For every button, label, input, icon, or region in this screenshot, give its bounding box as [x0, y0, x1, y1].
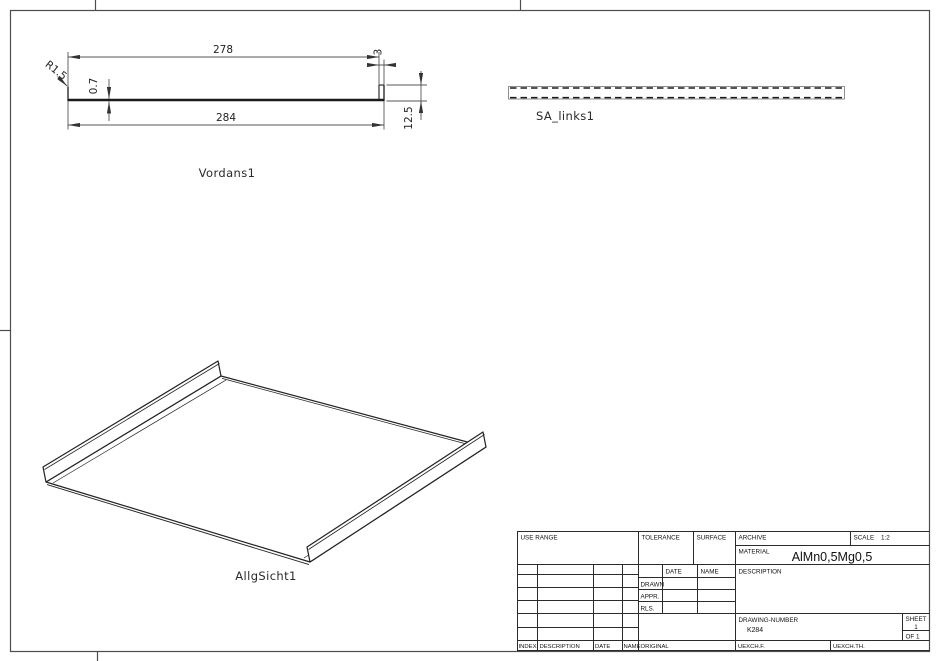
sheet-label: SHEET [906, 616, 927, 623]
name-header: NAME [701, 569, 719, 576]
view-label-front: Vordans1 [199, 166, 256, 180]
date-header: DATE [666, 569, 682, 576]
iso-view: AllgSicht1 [43, 361, 486, 583]
rev-name-label: NAME [624, 644, 641, 650]
rev-description-label: DESCRIPTION [540, 644, 580, 650]
dim-outer-width: 284 [216, 112, 236, 124]
rls-label: RLS. [641, 606, 655, 613]
rev-date-label: DATE [595, 644, 610, 650]
front-view-dimensions [58, 52, 428, 130]
drawing-number-label: DRAWING-NUMBER [739, 617, 799, 624]
drawing-sheet: 278 284 0.7 3 12.5 R1.5 Vordans1 SA_link… [0, 0, 940, 661]
scale-label: SCALE [854, 535, 875, 542]
title-block: USE RANGE TOLERANCE SURFACE ARCHIVE SCAL… [517, 532, 930, 651]
view-label-side: SA_links1 [536, 109, 594, 123]
scale-value: 1:2 [881, 535, 890, 542]
material-label: MATERIAL [739, 549, 771, 556]
material-value: AlMn0,5Mg0,5 [792, 550, 873, 564]
of-value: OF 1 [906, 634, 920, 641]
front-view: 278 284 0.7 3 12.5 R1.5 Vordans1 [43, 44, 427, 180]
side-view: SA_links1 [509, 87, 845, 124]
tolerance-label: TOLERANCE [642, 535, 680, 542]
drawn-label: DRAWN [641, 582, 665, 589]
archive-label: ARCHIVE [739, 535, 767, 542]
dim-flange-offset: 3 [373, 49, 385, 56]
iso-sheet-face [46, 376, 486, 562]
original-label: ORIGINAL [641, 644, 670, 650]
dim-thickness: 0.7 [88, 78, 100, 95]
sheet-value: 1 [914, 624, 918, 631]
dim-flange-height: 12.5 [403, 106, 415, 129]
drawing-number-value: K284 [747, 627, 763, 634]
index-label: INDEX [519, 644, 537, 650]
surface-label: SURFACE [697, 535, 727, 542]
uexchth-label: UEXCH.TH. [833, 644, 865, 650]
appr-label: APPR. [641, 594, 660, 601]
drawing-canvas: 278 284 0.7 3 12.5 R1.5 Vordans1 SA_link… [0, 0, 940, 661]
uexchf-label: UEXCH.F. [738, 644, 765, 650]
use-range-label: USE RANGE [521, 535, 558, 542]
dim-radius: R1.5 [43, 59, 69, 83]
dim-inner-width: 278 [213, 44, 233, 56]
description-label: DESCRIPTION [739, 569, 782, 576]
view-label-iso: AllgSicht1 [235, 569, 297, 583]
